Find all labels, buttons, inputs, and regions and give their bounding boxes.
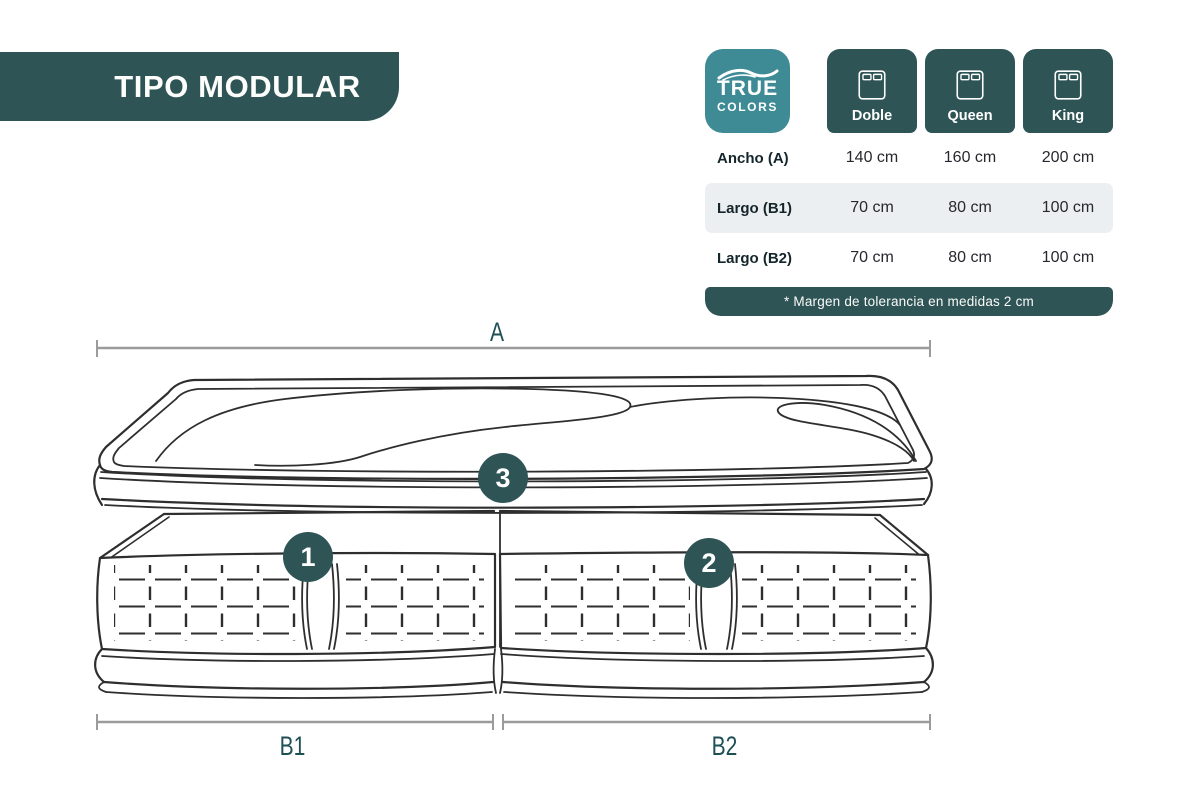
row-label: Largo (B1) bbox=[705, 200, 819, 217]
table-row-largo-b1: Largo (B1) 70 cm 80 cm 100 cm bbox=[705, 183, 1113, 233]
value-queen: 160 cm bbox=[925, 149, 1015, 167]
dimension-label-b1: B1 bbox=[263, 731, 323, 762]
brand-name-line2: COLORS bbox=[717, 99, 778, 116]
dimension-label-b2: B2 bbox=[695, 731, 755, 762]
page-title: TIPO MODULAR bbox=[114, 69, 361, 105]
size-table: TRUE COLORS Doble Queen bbox=[705, 49, 1113, 316]
value-king: 100 cm bbox=[1023, 199, 1113, 217]
bed-top-view-icon bbox=[856, 68, 888, 102]
bed-top-view-icon bbox=[1052, 68, 1084, 102]
brand-name-line1: TRUE bbox=[717, 78, 778, 99]
mattress-diagram bbox=[60, 315, 980, 790]
dimension-line-b1 bbox=[97, 714, 493, 730]
row-label: Largo (B2) bbox=[705, 250, 819, 267]
tolerance-note: * Margen de tolerancia en medidas 2 cm bbox=[784, 294, 1034, 309]
column-label: Doble bbox=[852, 108, 892, 124]
brand-logo: TRUE COLORS bbox=[705, 49, 790, 133]
column-header-queen: Queen bbox=[925, 49, 1015, 133]
table-row-ancho-a: Ancho (A) 140 cm 160 cm 200 cm bbox=[705, 133, 1113, 183]
value-doble: 140 cm bbox=[827, 149, 917, 167]
value-doble: 70 cm bbox=[827, 199, 917, 217]
tolerance-note-bar: * Margen de tolerancia en medidas 2 cm bbox=[705, 287, 1113, 316]
value-king: 200 cm bbox=[1023, 149, 1113, 167]
column-header-king: King bbox=[1023, 49, 1113, 133]
callout-badge-1: 1 bbox=[283, 532, 333, 582]
value-queen: 80 cm bbox=[925, 199, 1015, 217]
value-queen: 80 cm bbox=[925, 249, 1015, 267]
column-label: Queen bbox=[947, 108, 992, 124]
callout-badge-3: 3 bbox=[478, 453, 528, 503]
bed-top-view-icon bbox=[954, 68, 986, 102]
row-label: Ancho (A) bbox=[705, 150, 819, 167]
table-row-largo-b2: Largo (B2) 70 cm 80 cm 100 cm bbox=[705, 233, 1113, 283]
infographic-page: { "banner": { "title": "TIPO MODULAR" },… bbox=[0, 0, 1200, 800]
column-header-doble: Doble bbox=[827, 49, 917, 133]
value-king: 100 cm bbox=[1023, 249, 1113, 267]
value-doble: 70 cm bbox=[827, 249, 917, 267]
dimension-line-b2 bbox=[503, 714, 930, 730]
title-banner: TIPO MODULAR bbox=[0, 52, 399, 121]
callout-badge-2: 2 bbox=[684, 538, 734, 588]
column-label: King bbox=[1052, 108, 1084, 124]
size-table-header: TRUE COLORS Doble Queen bbox=[705, 49, 1113, 133]
dimension-label-a: A bbox=[467, 317, 527, 348]
